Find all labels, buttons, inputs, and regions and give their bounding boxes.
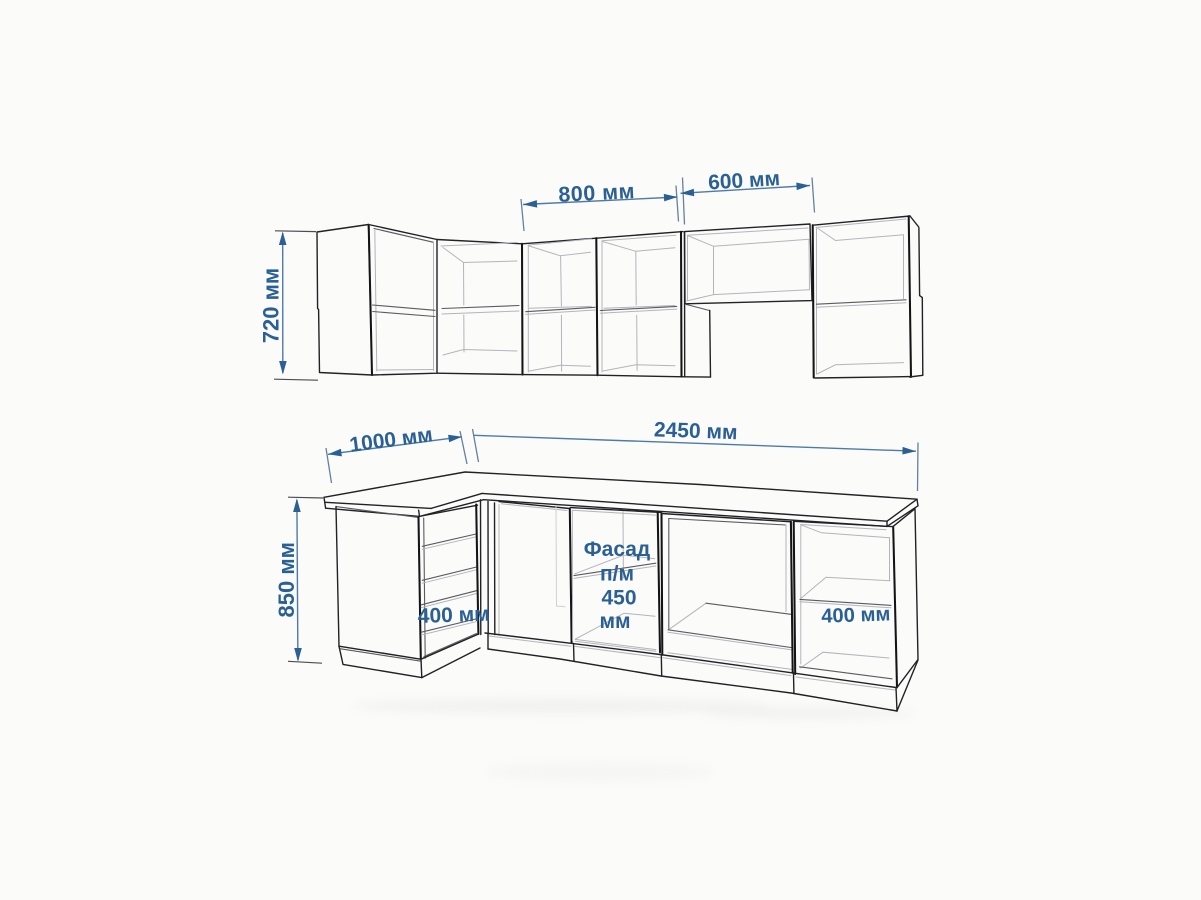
- svg-text:2450 мм: 2450 мм: [654, 418, 738, 444]
- svg-text:400 мм: 400 мм: [417, 603, 490, 628]
- svg-text:600 мм: 600 мм: [707, 167, 780, 194]
- svg-text:850 мм: 850 мм: [274, 542, 299, 617]
- svg-text:450: 450: [601, 587, 636, 610]
- svg-text:Фасад: Фасад: [584, 538, 651, 561]
- svg-text:720 мм: 720 мм: [259, 268, 284, 343]
- svg-text:400 мм: 400 мм: [821, 603, 891, 627]
- svg-text:мм: мм: [599, 610, 630, 633]
- svg-text:п/м: п/м: [600, 563, 634, 586]
- svg-text:800 мм: 800 мм: [558, 179, 636, 207]
